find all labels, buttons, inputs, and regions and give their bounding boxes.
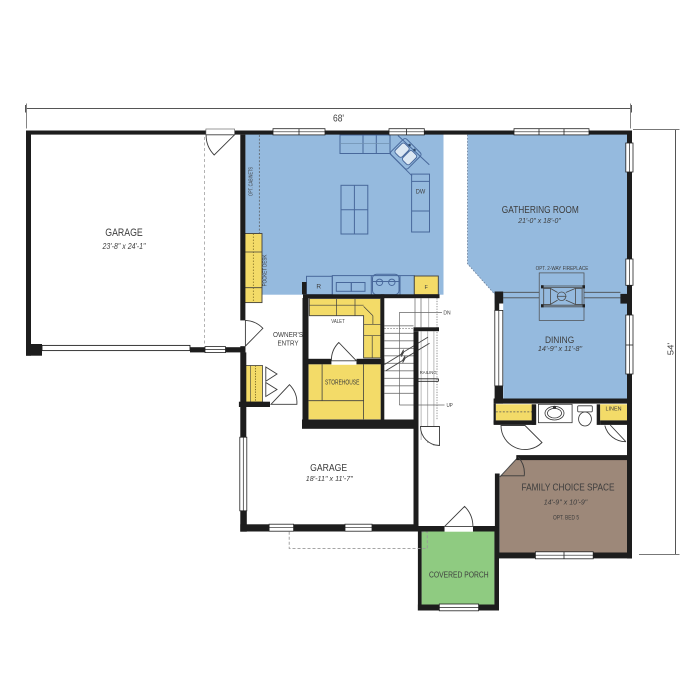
svg-text:OPT. CABINETS: OPT. CABINETS xyxy=(249,166,255,196)
svg-text:POCKET DESK: POCKET DESK xyxy=(263,254,269,286)
svg-text:OPT. BED 5: OPT. BED 5 xyxy=(553,516,580,522)
svg-text:14'-9" x 11'-8": 14'-9" x 11'-8" xyxy=(538,344,583,353)
svg-text:ENTRY: ENTRY xyxy=(278,339,299,348)
svg-text:DN: DN xyxy=(443,311,451,317)
svg-text:14'-9" x 10'-9": 14'-9" x 10'-9" xyxy=(544,498,588,507)
svg-text:UP: UP xyxy=(447,403,454,409)
svg-text:RAILING: RAILING xyxy=(420,370,437,375)
svg-text:23'-8" x 24'-1": 23'-8" x 24'-1" xyxy=(102,242,147,251)
svg-text:DW: DW xyxy=(416,190,426,196)
svg-text:LINEN: LINEN xyxy=(606,407,622,413)
svg-text:21'-0" x 18'-0": 21'-0" x 18'-0" xyxy=(517,216,561,225)
svg-text:68': 68' xyxy=(333,113,344,125)
svg-text:GARAGE: GARAGE xyxy=(105,227,143,239)
svg-text:VALET: VALET xyxy=(331,319,345,325)
svg-text:GATHERING ROOM: GATHERING ROOM xyxy=(502,204,579,216)
svg-text:OWNER'S: OWNER'S xyxy=(273,330,303,339)
svg-text:R: R xyxy=(316,283,321,290)
svg-text:GARAGE: GARAGE xyxy=(310,463,347,474)
svg-text:18'-11" x 11'-7": 18'-11" x 11'-7" xyxy=(306,474,353,483)
svg-text:STOREHOUSE: STOREHOUSE xyxy=(325,377,359,386)
svg-text:OPT. 2-WAY FIREPLACE: OPT. 2-WAY FIREPLACE xyxy=(536,266,589,272)
svg-text:FAMILY CHOICE SPACE: FAMILY CHOICE SPACE xyxy=(522,482,615,494)
svg-text:54': 54' xyxy=(666,342,676,355)
svg-text:COVERED PORCH: COVERED PORCH xyxy=(429,571,489,580)
